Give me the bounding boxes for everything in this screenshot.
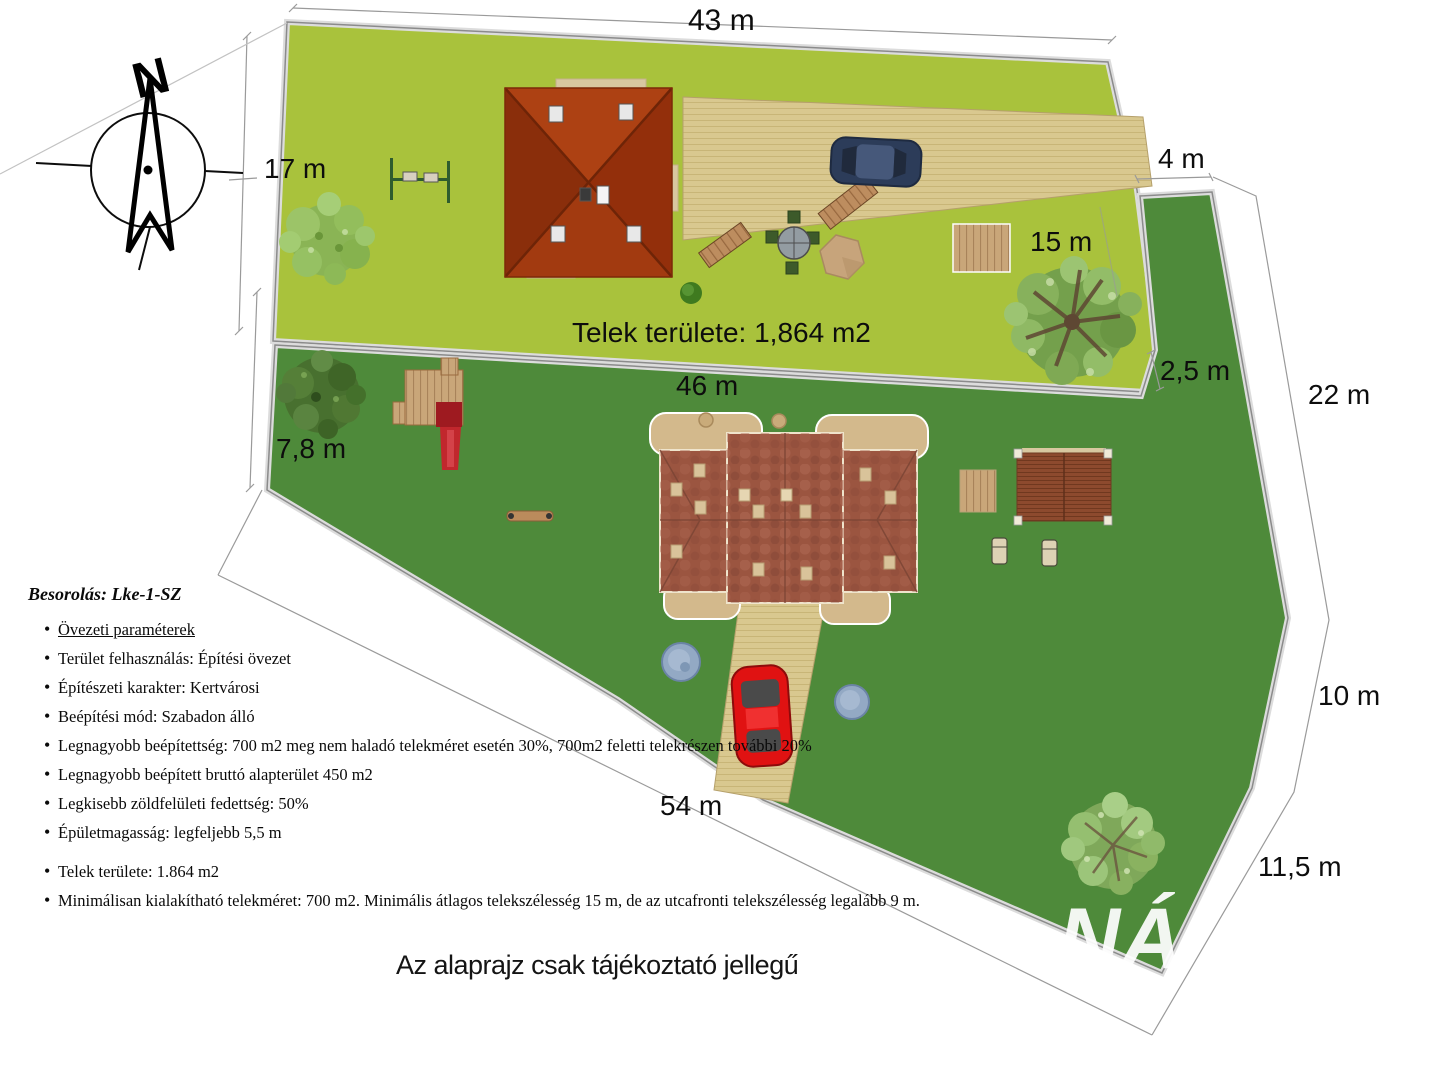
plan-canvas: N bbox=[0, 0, 1440, 1080]
compass-icon: N bbox=[36, 46, 243, 270]
lower-house-roof bbox=[660, 433, 917, 603]
dim-right-upper-label: 15 m bbox=[1030, 226, 1092, 258]
zoning-title: Besorolás: Lke-1-SZ bbox=[28, 584, 1038, 605]
dim-middle-width-label: 46 m bbox=[676, 370, 738, 402]
zoning-item: Építészeti karakter: Kertvárosi bbox=[44, 673, 1038, 702]
dim-right-side-upper-label: 22 m bbox=[1308, 379, 1370, 411]
zoning-parameters: Besorolás: Lke-1-SZ Övezeti paraméterek … bbox=[28, 584, 1038, 915]
zoning-item: Legnagyobb beépítettség: 700 m2 meg nem … bbox=[44, 731, 1038, 760]
north-label: N bbox=[126, 46, 175, 109]
pergola bbox=[960, 470, 996, 512]
zoning-item: Legkisebb zöldfelületi fedettség: 50% bbox=[44, 789, 1038, 818]
slide-top bbox=[436, 402, 462, 427]
zoning-item: Minimálisan kialakítható telekméret: 700… bbox=[44, 886, 1038, 915]
zoning-list: Övezeti paraméterek Terület felhasználás… bbox=[28, 615, 1038, 915]
wood-deck bbox=[953, 224, 1010, 272]
zoning-item: Beépítési mód: Szabadon álló bbox=[44, 702, 1038, 731]
sun-lounger bbox=[1042, 540, 1057, 566]
footer-note: Az alaprajz csak tájékoztató jellegű bbox=[396, 950, 798, 981]
zoning-item: Telek területe: 1.864 m2 bbox=[44, 857, 1038, 886]
dim-notch-label: 2,5 m bbox=[1160, 355, 1230, 387]
garden-shed bbox=[1014, 448, 1112, 525]
zoning-item: Épületmagasság: legfeljebb 5,5 m bbox=[44, 818, 1038, 847]
sun-lounger bbox=[992, 538, 1007, 564]
zoning-item: Terület felhasználás: Építési övezet bbox=[44, 644, 1038, 673]
upper-house bbox=[505, 79, 678, 278]
plot-area-label: Telek területe: 1,864 m2 bbox=[572, 317, 871, 349]
seesaw bbox=[507, 511, 553, 521]
dim-left-width-label: 17 m bbox=[264, 153, 326, 185]
zoning-item: Övezeti paraméterek bbox=[44, 615, 1038, 644]
dim-left-lower-label: 7,8 m bbox=[276, 433, 346, 465]
dim-gap-right-label: 4 m bbox=[1158, 143, 1205, 175]
car-blue bbox=[830, 137, 922, 188]
upper-house-roof bbox=[505, 88, 672, 277]
zoning-item: Legnagyobb beépített bruttó alapterület … bbox=[44, 760, 1038, 789]
small-bush bbox=[680, 282, 702, 304]
dim-top-width-label: 43 m bbox=[688, 4, 755, 38]
site-plan: N 43 m 17 m 4 m 15 m Telek területe: 1,8… bbox=[0, 0, 1440, 1080]
dim-right-side-mid-label: 10 m bbox=[1318, 680, 1380, 712]
dim-right-side-lower-label: 11,5 m bbox=[1258, 851, 1342, 883]
